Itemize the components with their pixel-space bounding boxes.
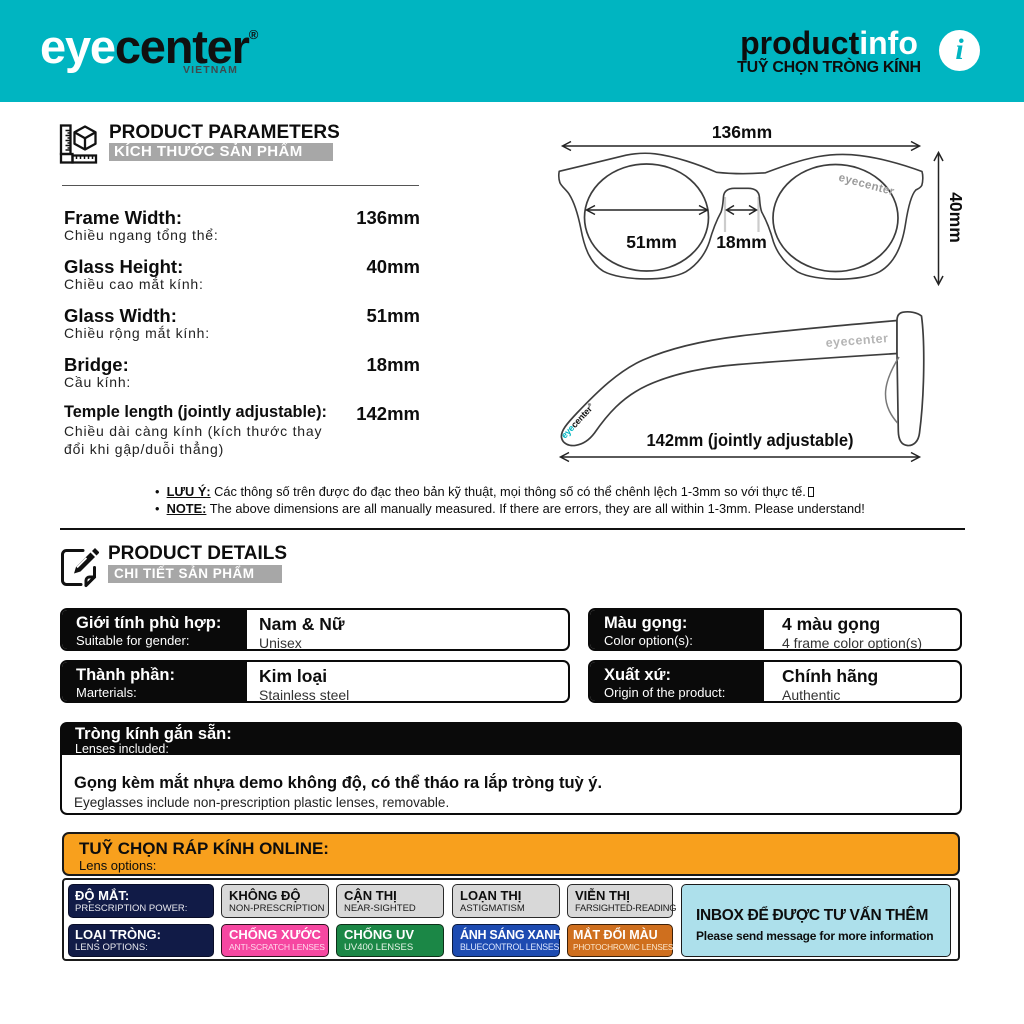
svg-text:18mm: 18mm [716, 232, 767, 252]
svg-text:142mm (jointly adjustable): 142mm (jointly adjustable) [647, 430, 854, 450]
svg-text:51mm: 51mm [626, 232, 677, 252]
svg-text:136mm: 136mm [712, 122, 772, 142]
svg-text:40mm: 40mm [946, 192, 966, 243]
